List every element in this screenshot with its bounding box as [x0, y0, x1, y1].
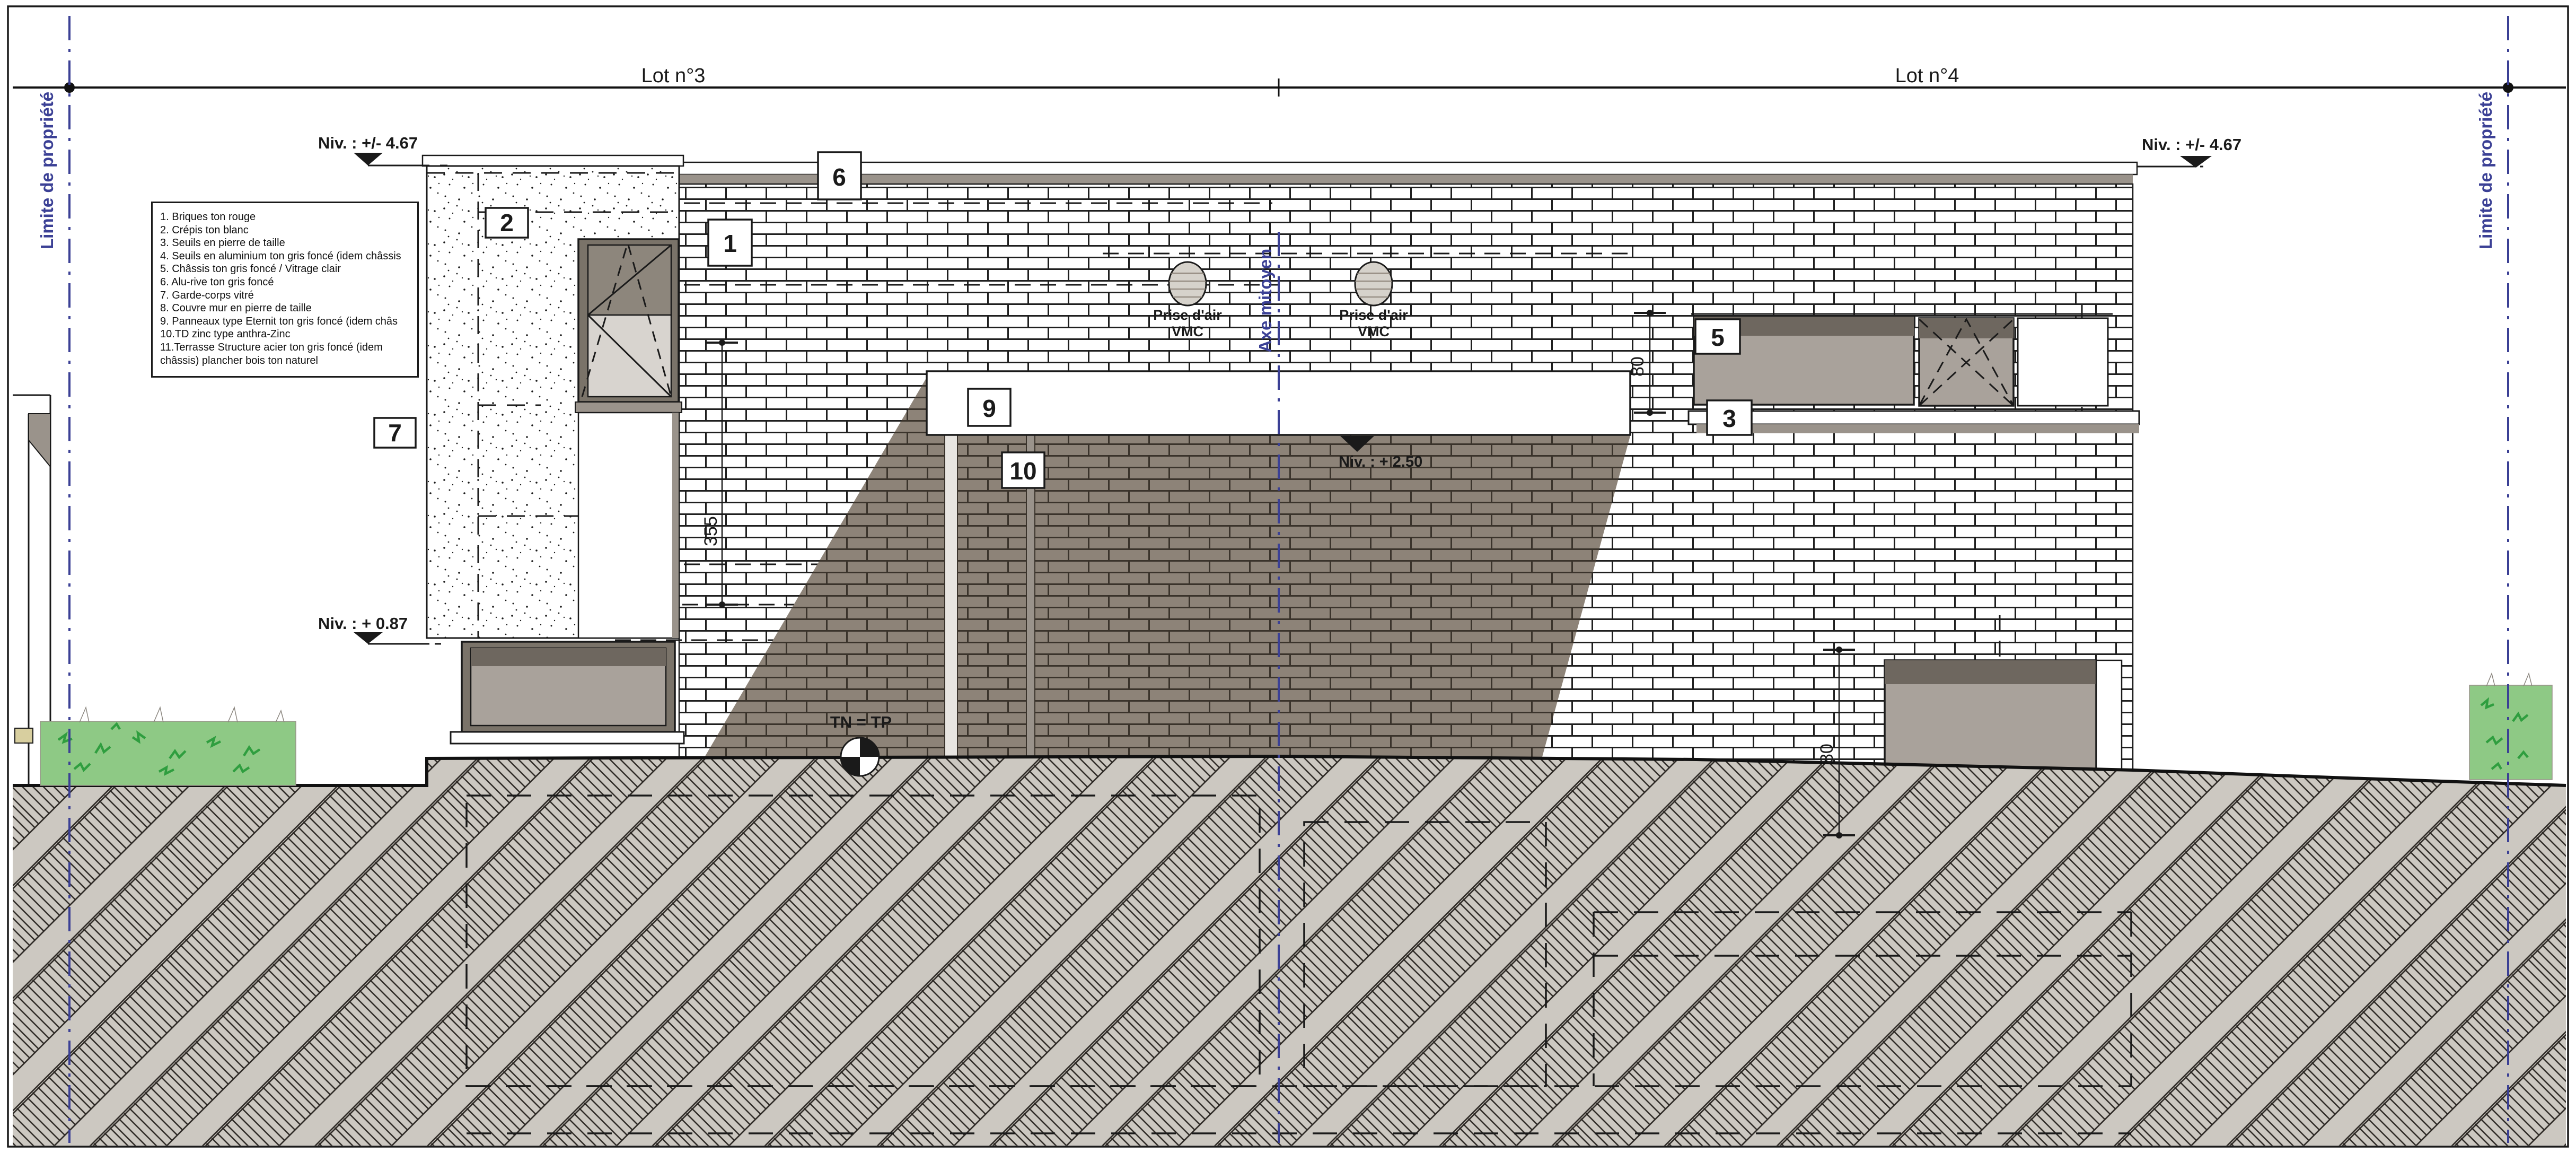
window-upper-right [1689, 314, 2139, 433]
dimension-80-lower-label: 80 [1817, 744, 1837, 764]
property-limit-left-label: Limite de propriété [37, 92, 57, 249]
vent-right-label-2: VMC [1358, 324, 1390, 339]
legend-item: 2. Crépis ton blanc [160, 224, 413, 237]
tn-tp-label: TN = TP [830, 713, 892, 731]
lot-right-label: Lot n°4 [1895, 65, 1959, 87]
ground-hatch [13, 756, 2566, 1146]
elevation-drawing-sheet: Prise d'air VMC Prise d'air VMC Niv. : +… [0, 0, 2576, 1153]
level-roof-left-label: Niv. : +/- 4.67 [318, 134, 418, 152]
wing-coping [423, 155, 683, 166]
legend-item: 9. Panneaux type Eternit ton gris foncé … [160, 315, 413, 328]
window-wing [578, 239, 679, 402]
roof-coping [674, 162, 2137, 174]
vent-left-label-2: VMC [1172, 324, 1203, 339]
wall-corner-strip [945, 435, 957, 761]
callout-9: 9 [982, 395, 996, 422]
sill-lower-left [451, 732, 684, 744]
legend-item: 7. Garde-corps vitré [160, 289, 413, 302]
legend-item: 8. Couvre mur en pierre de taille [160, 302, 413, 315]
legend-item: 11.Terrasse Structure acier ton gris fon… [160, 341, 413, 367]
left-wing [423, 155, 683, 638]
neighbour-wall-base [15, 728, 33, 743]
dimension-355-label: 355 [701, 516, 721, 546]
level-roof-right-label: Niv. : +/- 4.67 [2142, 135, 2241, 154]
legend-item: 3. Seuils en pierre de taille [160, 237, 413, 250]
vent-right-label-1: Prise d'air [1339, 307, 1408, 323]
coping-shadow-strip [679, 174, 2133, 184]
window-lower-left [451, 642, 684, 744]
drawing-canvas: Prise d'air VMC Prise d'air VMC Niv. : +… [0, 0, 2576, 1153]
callout-5: 5 [1711, 324, 1725, 351]
vent-left [1169, 262, 1206, 305]
tn-tp-marker [841, 738, 879, 776]
vent-left-label-1: Prise d'air [1153, 307, 1222, 323]
callout-6: 6 [832, 163, 846, 191]
level-mid-left-label: Niv. : + 0.87 [318, 614, 408, 633]
legend-item: 10.TD zinc type anthra-Zinc [160, 328, 413, 341]
sill-upper-right [1689, 411, 2139, 424]
materials-legend: 1. Briques ton rouge 2. Crépis ton blanc… [151, 202, 419, 378]
callout-2: 2 [500, 209, 514, 237]
wing-panel-edge [672, 413, 679, 638]
vent-right [1355, 262, 1392, 305]
wing-sill [575, 402, 682, 413]
dimension-80-upper-label: 80 [1628, 356, 1648, 377]
property-limit-right-label: Limite de propriété [2476, 92, 2495, 249]
level-canopy-label: Niv. : + 2.50 [1339, 453, 1422, 470]
legend-item: 6. Alu-rive ton gris foncé [160, 276, 413, 289]
wing-lower-panel [578, 413, 679, 638]
bush-right [2469, 674, 2552, 780]
lot-left-label: Lot n°3 [641, 65, 706, 87]
callout-1: 1 [723, 230, 737, 257]
callout-10: 10 [1009, 457, 1036, 485]
axis-label: Axe mitoyen [1255, 249, 1275, 353]
callout-3: 3 [1722, 405, 1736, 432]
sill-shadow [1696, 424, 2139, 433]
legend-item: 4. Seuils en aluminium ton gris foncé (i… [160, 250, 413, 263]
legend-item: 1. Briques ton rouge [160, 211, 413, 224]
callout-7: 7 [388, 419, 402, 447]
legend-item: 5. Châssis ton gris foncé / Vitrage clai… [160, 263, 413, 276]
